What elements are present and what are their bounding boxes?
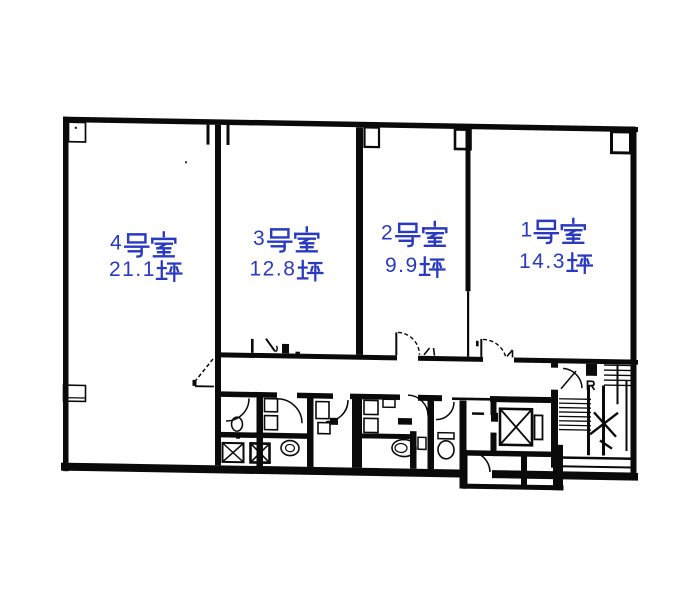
svg-text:21.1: 21.1 bbox=[109, 258, 156, 281]
svg-text:14.3: 14.3 bbox=[519, 250, 566, 273]
svg-text:4: 4 bbox=[110, 232, 122, 255]
svg-text:1: 1 bbox=[521, 218, 533, 241]
svg-text:3: 3 bbox=[253, 227, 265, 250]
svg-text:12.8: 12.8 bbox=[250, 258, 297, 281]
svg-text:9.9: 9.9 bbox=[385, 254, 419, 277]
svg-text:2: 2 bbox=[381, 221, 393, 244]
